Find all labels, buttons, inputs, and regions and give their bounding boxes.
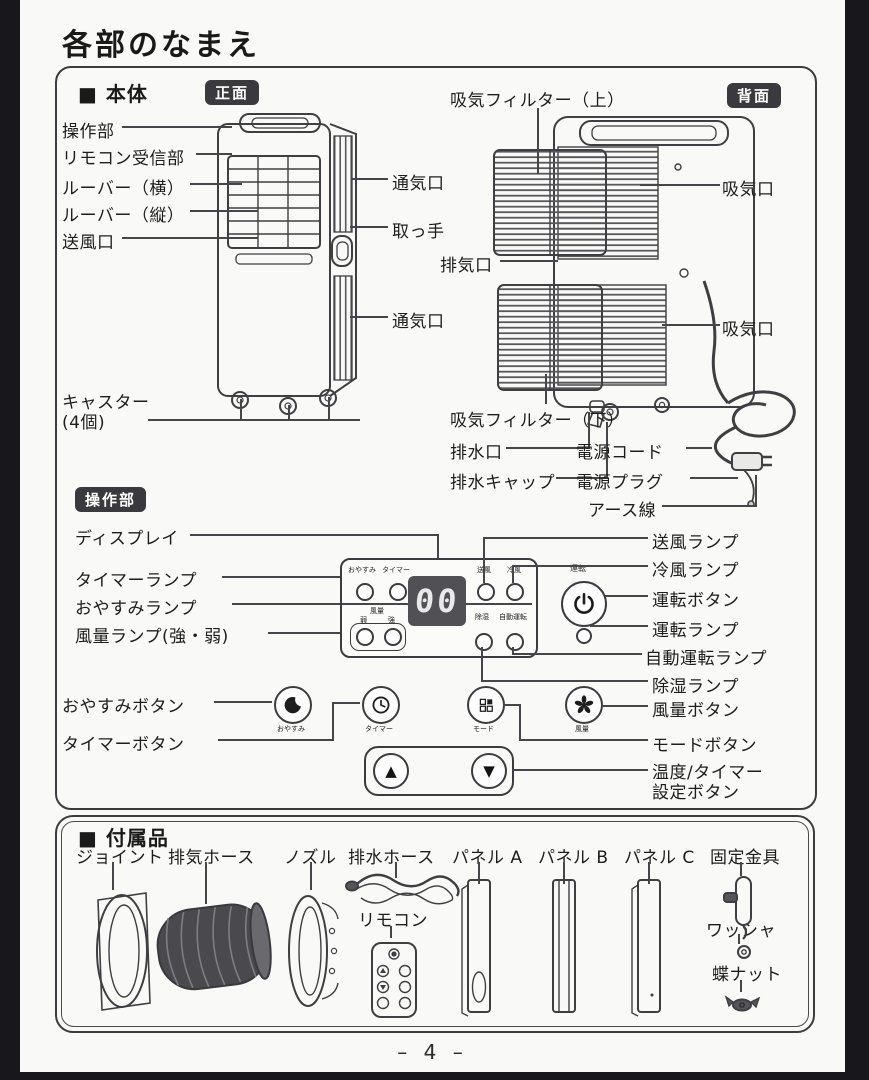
label-power-plug: 電源プラグ xyxy=(576,468,664,493)
label-timer-button: タイマーボタン xyxy=(62,730,185,755)
label-remote-receiver: リモコン受信部 xyxy=(62,144,185,169)
leader-line xyxy=(332,702,334,741)
up-triangle-icon: ▲ xyxy=(385,764,397,779)
leader-line xyxy=(483,537,485,583)
leader-line xyxy=(196,153,232,155)
label-earth-wire: アース線 xyxy=(588,496,656,521)
leader-line xyxy=(537,108,539,174)
fan-weak-lamp xyxy=(356,628,374,646)
accessories-illustration xyxy=(60,855,815,1027)
leader-line xyxy=(122,237,258,239)
leader-line xyxy=(519,739,648,741)
leader-line xyxy=(190,183,242,185)
leader-line xyxy=(500,260,558,262)
label-dehumidify-lamp: 除湿ランプ xyxy=(652,672,739,697)
down-triangle-icon: ▼ xyxy=(483,764,495,779)
leader-line xyxy=(214,701,272,703)
leader-line xyxy=(662,324,720,326)
label-cool-lamp: 冷風ランプ xyxy=(652,556,739,581)
leader-line xyxy=(148,419,360,421)
leader-line xyxy=(240,399,242,419)
leader-line xyxy=(481,647,483,682)
clock-icon xyxy=(370,694,392,716)
label-vent-top: 通気口 xyxy=(392,169,445,194)
label-louver-vertical: ルーバー（縦） xyxy=(62,201,184,226)
label-power-cord: 電源コード xyxy=(576,438,664,463)
label-fan-button: 風量ボタン xyxy=(652,696,740,721)
power-button xyxy=(561,581,607,627)
leader-line xyxy=(512,769,648,771)
mode-button-caption: モード xyxy=(473,724,494,734)
label-air-outlet: 送風口 xyxy=(62,228,115,253)
leader-line xyxy=(122,126,232,128)
panel-fan-level-label: 風量 xyxy=(370,606,384,616)
timer-lamp xyxy=(389,583,407,601)
mode-button xyxy=(467,686,505,724)
leader-line xyxy=(328,397,330,419)
front-view-badge: 正面 xyxy=(205,80,259,105)
manual-page: 各部のなまえ ■ 本体 正面 背面 xyxy=(0,0,869,1080)
leader-line xyxy=(190,534,439,536)
label-power-lamp: 運転ランプ xyxy=(652,616,739,641)
label-temp-set-2: 設定ボタン xyxy=(652,778,740,803)
label-display: ディスプレイ xyxy=(75,524,179,549)
sleep-button xyxy=(274,686,312,724)
leader-line xyxy=(481,680,648,682)
moon-icon xyxy=(283,695,303,715)
main-unit-heading: ■ 本体 xyxy=(78,78,148,107)
up-button: ▲ xyxy=(373,753,409,789)
label-timer-lamp: タイマーランプ xyxy=(75,566,197,591)
panel-dehumidify-label: 除湿 xyxy=(475,612,489,622)
label-drain-cap: 排水キャップ xyxy=(450,468,555,493)
dehumidify-lamp xyxy=(475,633,493,651)
leader-line xyxy=(590,625,648,627)
page-title: 各部のなまえ xyxy=(62,20,260,64)
leader-line xyxy=(503,704,519,706)
label-louver-horizontal: ルーバー（横） xyxy=(62,174,184,199)
label-exhaust-vent: 排気口 xyxy=(440,251,493,276)
leader-line xyxy=(218,739,334,741)
sleep-lamp xyxy=(356,583,374,601)
label-intake-top: 吸気口 xyxy=(722,175,775,200)
fan-button-caption: 風量 xyxy=(575,724,589,734)
label-drain-port: 排水口 xyxy=(450,438,503,463)
power-lamp xyxy=(576,628,592,644)
leader-line xyxy=(268,632,350,634)
leader-line xyxy=(352,178,388,180)
panel-display: 00 xyxy=(408,576,466,626)
leader-line xyxy=(288,405,290,419)
leader-line xyxy=(512,565,514,583)
leader-line xyxy=(662,505,757,507)
label-caster-count: (4個) xyxy=(62,408,105,433)
label-vent-bottom: 通気口 xyxy=(392,307,445,332)
label-auto-lamp: 自動運転ランプ xyxy=(645,644,767,669)
fan-button xyxy=(565,686,603,724)
label-sleep-lamp: おやすみランプ xyxy=(75,594,197,619)
leader-line xyxy=(350,316,388,318)
timer-button-caption: タイマー xyxy=(365,724,393,734)
down-button: ▼ xyxy=(471,753,507,789)
label-power-button: 運転ボタン xyxy=(652,586,740,611)
label-intake-bottom: 吸気口 xyxy=(722,315,775,340)
auto-lamp xyxy=(506,633,524,651)
leader-line xyxy=(483,537,648,539)
display-value: 00 xyxy=(413,582,461,620)
leader-line xyxy=(640,184,720,186)
page-number: – 4 – xyxy=(20,1040,845,1064)
label-sleep-button: おやすみボタン xyxy=(62,692,185,717)
control-section-badge: 操作部 xyxy=(75,487,146,512)
panel-sleep-label: おやすみ xyxy=(348,565,376,575)
label-handle: 取っ手 xyxy=(392,217,445,242)
label-control-section: 操作部 xyxy=(62,117,115,142)
leader-line xyxy=(605,595,648,597)
leader-line xyxy=(512,565,648,567)
leader-line xyxy=(519,704,521,741)
panel-auto-label: 自動運転 xyxy=(499,612,527,622)
leader-line xyxy=(690,477,738,479)
leader-line xyxy=(755,475,757,507)
leader-line xyxy=(601,705,648,707)
leader-line xyxy=(686,447,712,449)
label-intake-filter-bottom: 吸気フィルター（下） xyxy=(450,406,625,431)
leader-line xyxy=(190,210,258,212)
label-mode-button: モードボタン xyxy=(652,731,757,756)
mode-icon xyxy=(476,695,496,715)
label-fan-blow-lamp: 送風ランプ xyxy=(652,528,739,553)
leader-line xyxy=(332,702,360,704)
label-fan-lamp: 風量ランプ(強・弱) xyxy=(75,622,229,647)
sleep-button-caption: おやすみ xyxy=(277,724,305,734)
panel-timer-label: タイマー xyxy=(382,565,410,575)
fan-icon xyxy=(573,694,595,716)
fan-strong-lamp xyxy=(384,628,402,646)
cool-lamp xyxy=(506,583,524,601)
power-icon xyxy=(571,591,597,617)
timer-button xyxy=(362,686,400,724)
leader-line xyxy=(545,374,547,404)
leader-line xyxy=(350,226,388,228)
fan-blow-lamp xyxy=(477,583,495,601)
leader-line xyxy=(512,653,642,655)
